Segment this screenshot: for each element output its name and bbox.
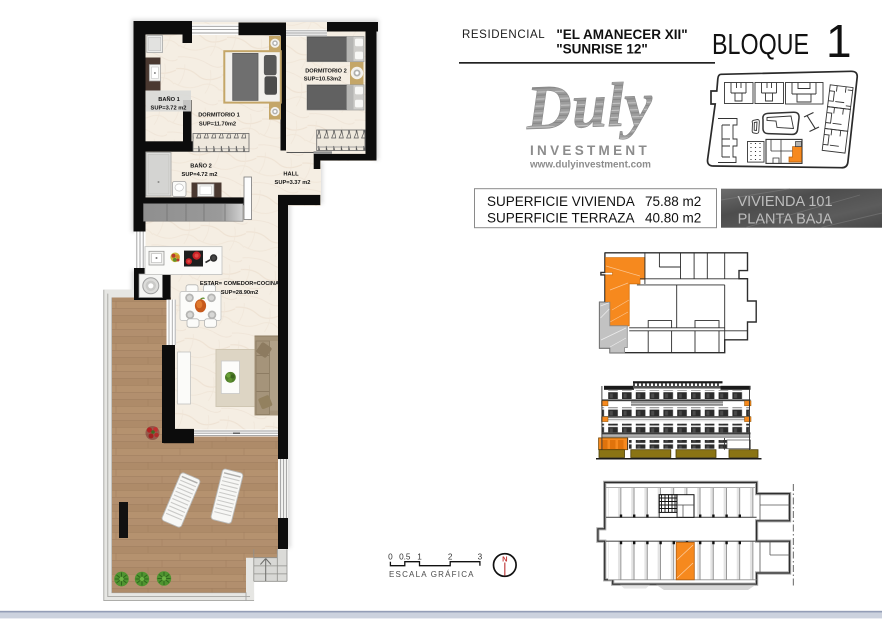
svg-text:BLOQUE: BLOQUE [712, 29, 809, 61]
svg-text:ESCALA GRÁFICA: ESCALA GRÁFICA [389, 570, 475, 579]
svg-text:"SUNRISE 12": "SUNRISE 12" [556, 42, 648, 57]
svg-text:PLANTA BAJA: PLANTA BAJA [738, 212, 833, 228]
svg-text:www.dulyinvestment.com: www.dulyinvestment.com [529, 160, 651, 171]
svg-text:0: 0 [388, 553, 393, 562]
svg-text:0.5: 0.5 [399, 553, 411, 562]
svg-text:SUP=28.90m2: SUP=28.90m2 [221, 290, 258, 296]
svg-text:DORMITORIO 1: DORMITORIO 1 [198, 113, 240, 119]
svg-text:HALL: HALL [283, 172, 299, 178]
svg-text:DORMITORIO 2: DORMITORIO 2 [305, 69, 347, 75]
svg-text:1: 1 [417, 553, 422, 562]
svg-text:SUP=3.37 m2: SUP=3.37 m2 [275, 180, 311, 186]
svg-text:Duly: Duly [524, 69, 654, 143]
svg-text:BAÑO 1: BAÑO 1 [158, 96, 180, 103]
svg-text:SUP=4.72 m2: SUP=4.72 m2 [182, 172, 218, 178]
svg-text:1: 1 [826, 15, 852, 67]
svg-text:SUP=11.70m2: SUP=11.70m2 [199, 122, 236, 128]
svg-text:SUP=10.53m2: SUP=10.53m2 [304, 77, 341, 83]
svg-text:N: N [502, 555, 507, 564]
svg-text:SUPERFICIE TERRAZA: SUPERFICIE TERRAZA [487, 211, 635, 226]
svg-text:BAÑO 2: BAÑO 2 [190, 163, 212, 170]
svg-text:75.88 m2: 75.88 m2 [645, 194, 701, 209]
svg-text:40.80 m2: 40.80 m2 [645, 211, 701, 226]
svg-text:INVESTMENT: INVESTMENT [530, 143, 650, 158]
svg-text:RESIDENCIAL: RESIDENCIAL [462, 29, 545, 41]
svg-text:2: 2 [448, 553, 453, 562]
svg-text:3: 3 [478, 553, 483, 562]
svg-text:SUP=3.72 m2: SUP=3.72 m2 [151, 106, 187, 112]
svg-text:"EL AMANECER XII": "EL AMANECER XII" [556, 27, 687, 42]
svg-text:SUPERFICIE VIVIENDA: SUPERFICIE VIVIENDA [487, 194, 635, 209]
svg-text:ESTAR= COMEDOR=COCINA: ESTAR= COMEDOR=COCINA [200, 281, 279, 287]
svg-text:VIVIENDA 101: VIVIENDA 101 [737, 194, 832, 210]
